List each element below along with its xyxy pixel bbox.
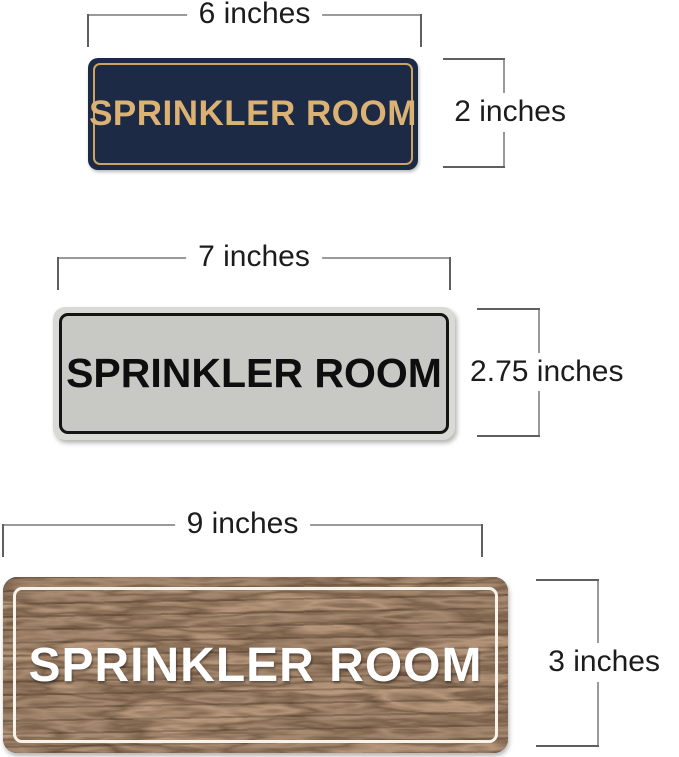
dimension-tick bbox=[536, 745, 599, 747]
width-dimension-bracket-wood: 9 inches bbox=[2, 524, 483, 557]
width-dimension-bracket-navy: 6 inches bbox=[87, 14, 422, 47]
sign-size-comparison-diagram: 6 inches SPRINKLER ROOM 2 inches 7 inche… bbox=[0, 0, 679, 757]
dimension-tick bbox=[477, 308, 540, 310]
dimension-tick bbox=[481, 524, 483, 557]
height-label-silver: 2.75 inches bbox=[462, 352, 631, 390]
sign-navy: SPRINKLER ROOM bbox=[88, 58, 418, 170]
height-label-navy: 2 inches bbox=[446, 93, 574, 132]
dimension-tick bbox=[420, 14, 422, 47]
dimension-tick bbox=[449, 257, 451, 290]
width-label-silver: 7 inches bbox=[186, 240, 322, 275]
height-label-wood: 3 inches bbox=[540, 643, 668, 682]
width-label-wood: 9 inches bbox=[175, 507, 311, 542]
dimension-tick bbox=[2, 524, 4, 557]
width-dimension-bracket-silver: 7 inches bbox=[57, 257, 451, 290]
dimension-tick bbox=[477, 435, 540, 437]
sign-wood: SPRINKLER ROOM bbox=[3, 577, 508, 753]
dimension-tick bbox=[443, 166, 505, 168]
height-dimension-bracket-wood: 3 inches bbox=[536, 579, 599, 747]
dimension-tick bbox=[57, 257, 59, 290]
height-dimension-bracket-silver: 2.75 inches bbox=[477, 308, 540, 437]
height-dimension-bracket-navy: 2 inches bbox=[443, 58, 505, 168]
sign-text-silver: SPRINKLER ROOM bbox=[66, 350, 442, 397]
dimension-tick bbox=[443, 58, 505, 60]
width-label-navy: 6 inches bbox=[187, 0, 323, 32]
dimension-tick bbox=[536, 579, 599, 581]
dimension-tick bbox=[87, 14, 89, 47]
sign-text-wood: SPRINKLER ROOM bbox=[28, 638, 482, 693]
sign-text-navy: SPRINKLER ROOM bbox=[89, 94, 417, 134]
sign-silver: SPRINKLER ROOM bbox=[53, 307, 455, 440]
